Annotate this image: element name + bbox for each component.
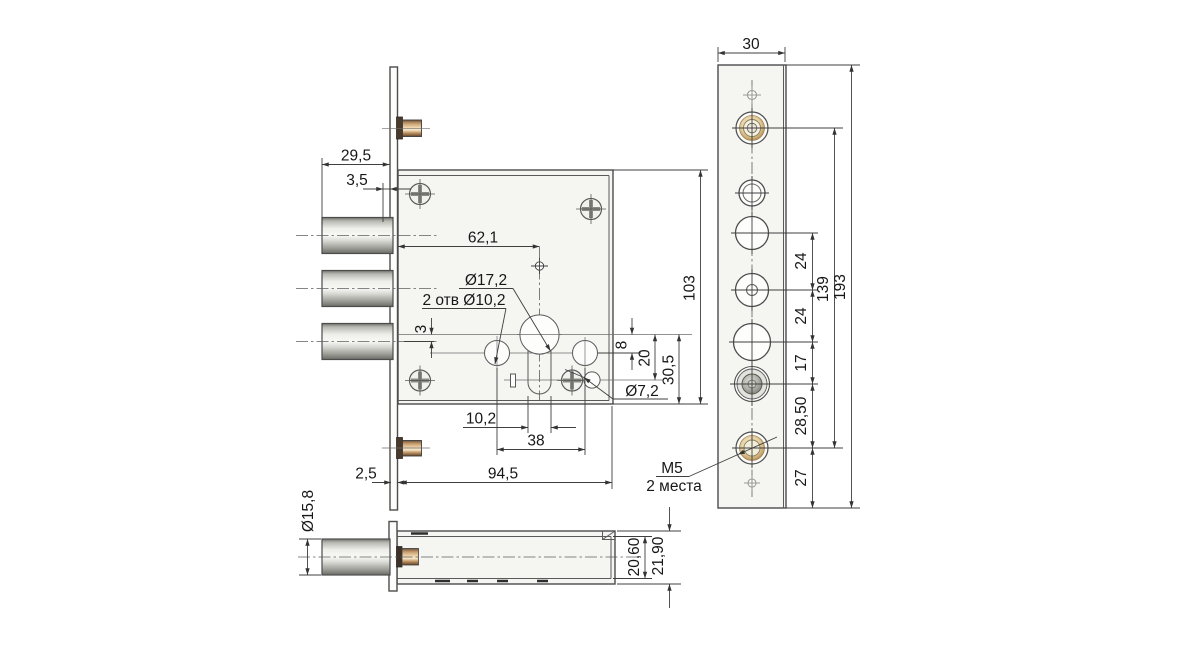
dim-20: 20 bbox=[637, 335, 656, 381]
dim-20-label: 20 bbox=[637, 349, 654, 367]
side-body bbox=[397, 531, 615, 584]
dim-3-5-label: 3,5 bbox=[346, 172, 368, 189]
dim-38-label: 38 bbox=[527, 433, 544, 450]
dim-chain: 24 24 17 28,50 27 bbox=[793, 233, 813, 508]
side-view: Ø15,8 20,60 21,90 bbox=[298, 490, 681, 608]
dim-8-label: 8 bbox=[614, 341, 631, 350]
dim-20-60: 20,60 bbox=[613, 537, 652, 579]
dim-139-label: 139 bbox=[815, 276, 832, 302]
dim-15-8-label: Ø15,8 bbox=[300, 490, 317, 532]
callout-2-holes-10-2-label: 2 отв Ø10,2 bbox=[422, 292, 505, 309]
dim-2-5-label: 2,5 bbox=[355, 466, 377, 483]
dim-29-5-label: 29,5 bbox=[341, 148, 371, 165]
callout-m5-label: М5 bbox=[661, 460, 683, 477]
dim-2-5: 2,5 bbox=[355, 466, 415, 483]
dim-94-5-label: 94,5 bbox=[488, 466, 518, 483]
dim-24a-label: 24 bbox=[793, 252, 810, 270]
dim-30-label: 30 bbox=[742, 36, 760, 53]
callout-dia-17-2-label: Ø17,2 bbox=[465, 272, 507, 289]
dim-3-label: 3 bbox=[413, 325, 430, 334]
hole-7-2 bbox=[584, 372, 600, 388]
drawing-canvas: 29,5 3,5 62,1 3 8 bbox=[0, 0, 1201, 645]
dim-30-5: 30,5 bbox=[661, 335, 680, 405]
dim-30-5-label: 30,5 bbox=[661, 355, 678, 385]
technical-drawing-lock: 29,5 3,5 62,1 3 8 bbox=[0, 0, 1201, 645]
dim-17-label: 17 bbox=[793, 354, 810, 371]
dim-94-5: 94,5 bbox=[400, 406, 612, 489]
m5-post-bottom bbox=[382, 438, 430, 459]
callout-m5-places-label: 2 места bbox=[646, 478, 702, 495]
faceplate-view: 30 24 24 17 28,50 27 139 193 bbox=[646, 36, 860, 508]
callout-dia-7-2-label: Ø7,2 bbox=[625, 383, 659, 400]
dim-10-2-label: 10,2 bbox=[466, 411, 496, 428]
front-view: 29,5 3,5 62,1 3 8 bbox=[296, 67, 708, 510]
dim-20-60-label: 20,60 bbox=[626, 537, 643, 576]
dim-28-50-label: 28,50 bbox=[793, 396, 810, 435]
dim-21-90-label: 21,90 bbox=[650, 536, 667, 575]
m5-post-top bbox=[382, 117, 430, 139]
dim-24b-label: 24 bbox=[793, 307, 810, 325]
small-slot bbox=[511, 374, 516, 387]
dim-62-1-label: 62,1 bbox=[468, 230, 498, 247]
dim-193-label: 193 bbox=[832, 274, 849, 300]
dim-15-8: Ø15,8 bbox=[299, 490, 321, 575]
dim-103-label: 103 bbox=[682, 275, 699, 301]
dim-27-label: 27 bbox=[793, 469, 810, 486]
dim-30: 30 bbox=[718, 36, 785, 62]
